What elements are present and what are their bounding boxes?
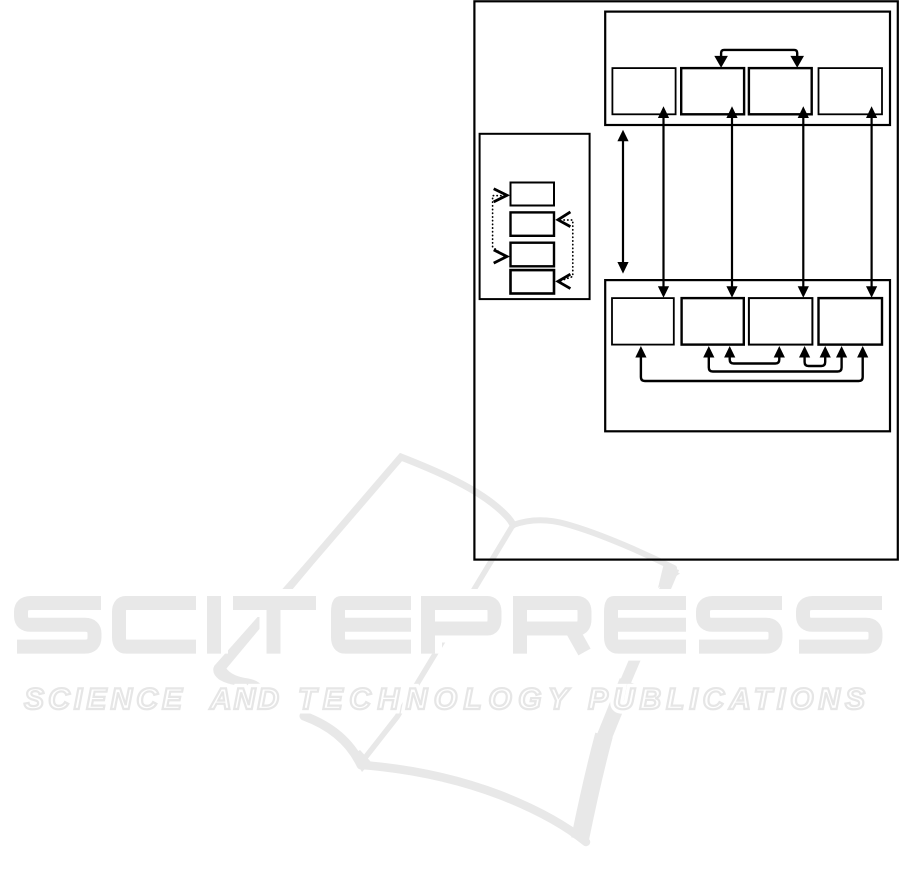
svg-text:TECHNOLOGY: TECHNOLOGY — [298, 683, 571, 716]
svg-text:AND: AND — [209, 683, 279, 716]
